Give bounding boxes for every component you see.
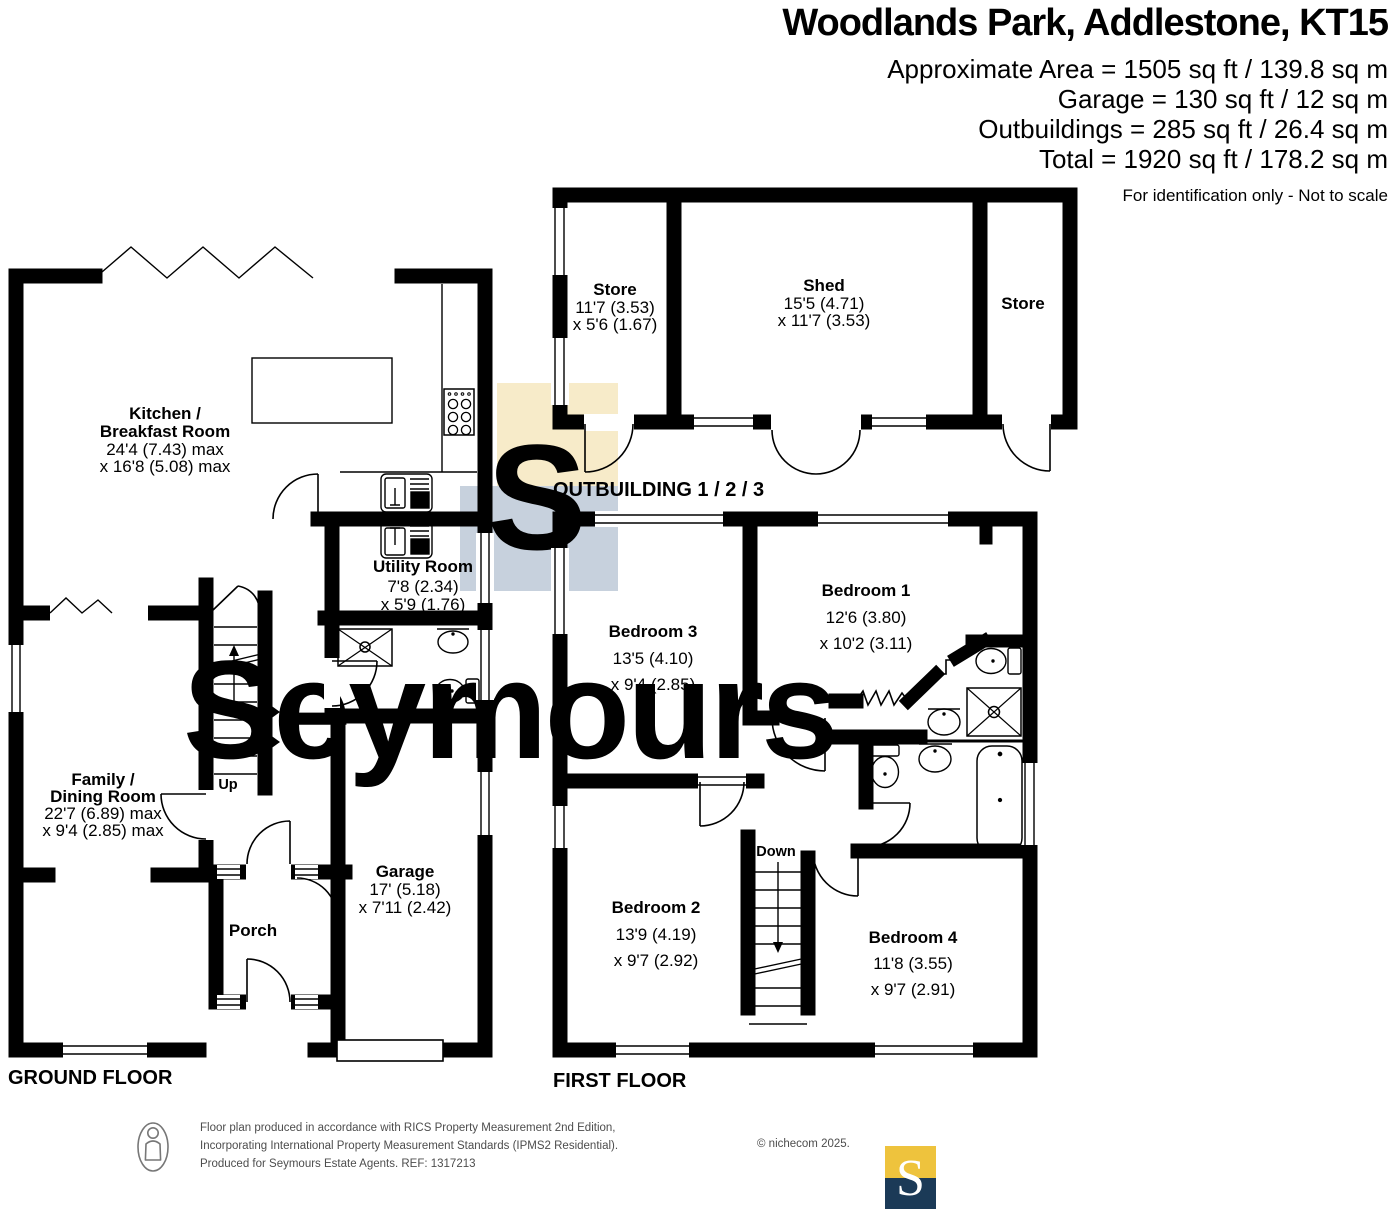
area-outbuildings: Outbuildings = 285 sq ft / 26.4 sq m	[782, 114, 1388, 144]
opening-break-line	[856, 660, 956, 705]
room-dim1-bedroom3: 13'5 (4.10)	[613, 649, 694, 668]
stairs-up-label: Up	[218, 777, 237, 793]
room-dim2-kitchen: x 16'8 (5.08) max	[100, 457, 231, 476]
room-dim2-bedroom1: x 10'2 (3.11)	[820, 634, 913, 653]
ground-floor-label: GROUND FLOOR	[8, 1067, 173, 1089]
bathtub-icon	[977, 746, 1022, 853]
room-label-store2: Store	[1001, 294, 1044, 313]
room-label-porch: Porch	[229, 921, 277, 940]
room-label-store1: Store	[593, 280, 636, 299]
copyright: © nichecom 2025.	[757, 1138, 850, 1150]
stairs-down-label: Down	[756, 844, 795, 860]
room-dim2-shed: x 11'7 (3.53)	[778, 311, 871, 330]
room-label-bedroom4: Bedroom 4	[869, 928, 958, 947]
footer-line2: Incorporating International Property Mea…	[200, 1137, 618, 1155]
room-dim2-store1: x 5'6 (1.67)	[573, 315, 658, 334]
room-label-bedroom2: Bedroom 2	[612, 898, 701, 917]
footer-disclaimer: Floor plan produced in accordance with R…	[200, 1119, 618, 1173]
first-floor-label: FIRST FLOOR	[553, 1070, 687, 1092]
stairs-down-arrow	[773, 942, 783, 953]
room-dim2-utility: x 5'9 (1.76)	[381, 595, 466, 614]
room-dim1-garage: 17' (5.18)	[369, 880, 440, 899]
ensuite-toilet-icon	[976, 648, 1021, 674]
floorplan-page: S Seymours Store 11'7 (3.53)	[0, 0, 1392, 1209]
person-icon	[135, 1120, 173, 1179]
room-label-bedroom1: Bedroom 1	[822, 581, 911, 600]
outbuilding-plan: Store 11'7 (3.53) x 5'6 (1.67) Shed 15'5…	[551, 195, 1070, 501]
outbuilding-doors	[585, 424, 1050, 474]
area-approximate: Approximate Area = 1505 sq ft / 139.8 sq…	[782, 54, 1388, 84]
kitchen-counter	[252, 284, 477, 472]
scale-note: For identification only - Not to scale	[782, 186, 1388, 206]
room-label-kitchen-1: Kitchen /	[129, 404, 201, 423]
room-dim2-garage: x 7'11 (2.42)	[359, 898, 452, 917]
header: Woodlands Park, Addlestone, KT15 Approxi…	[782, 0, 1388, 206]
garage-door	[337, 1040, 443, 1061]
room-dim1-bedroom2: 13'9 (4.19)	[616, 925, 697, 944]
room-dim2-bedroom2: x 9'7 (2.92)	[614, 951, 699, 970]
room-dim1-bedroom4: 11'8 (3.55)	[873, 954, 952, 973]
stove-icon	[444, 389, 474, 435]
room-dim2-bedroom4: x 9'7 (2.91)	[871, 980, 956, 999]
room-dim2-bedroom3: x 9'4 (2.85)	[611, 675, 696, 694]
room-dim2-family: x 9'4 (2.85) max	[42, 821, 164, 840]
stairs-down: Down	[749, 844, 807, 1024]
watermark-text: Seymours	[183, 631, 836, 788]
bathroom-basin-icon	[919, 744, 952, 772]
room-label-bedroom3: Bedroom 3	[609, 622, 698, 641]
bathroom-toilet-icon	[871, 745, 899, 788]
footer-line1: Floor plan produced in accordance with R…	[200, 1119, 618, 1137]
utility-sink-icon	[381, 522, 432, 558]
seymours-logo: S	[885, 1146, 936, 1209]
logo-letter: S	[885, 1148, 936, 1209]
room-dim1-utility: 7'8 (2.34)	[387, 577, 458, 596]
area-garage: Garage = 130 sq ft / 12 sq m	[782, 84, 1388, 114]
outbuilding-floor-label: OUTBUILDING 1 / 2 / 3	[553, 479, 764, 501]
page-title: Woodlands Park, Addlestone, KT15	[782, 0, 1388, 46]
footer-line3: Produced for Seymours Estate Agents. REF…	[200, 1155, 618, 1173]
room-label-kitchen-2: Breakfast Room	[100, 422, 230, 441]
kitchen-sink-icon	[381, 474, 432, 512]
first-floor-plan: Down	[551, 511, 1039, 1092]
kitchen-island	[252, 358, 392, 423]
room-label-shed: Shed	[803, 276, 845, 295]
area-total: Total = 1920 sq ft / 178.2 sq m	[782, 144, 1388, 174]
room-label-utility: Utility Room	[373, 557, 473, 576]
room-dim1-bedroom1: 12'6 (3.80)	[826, 608, 907, 627]
room-label-garage: Garage	[376, 862, 435, 881]
ensuite-shower-icon	[967, 688, 1021, 736]
ensuite-basin-icon	[928, 709, 960, 735]
